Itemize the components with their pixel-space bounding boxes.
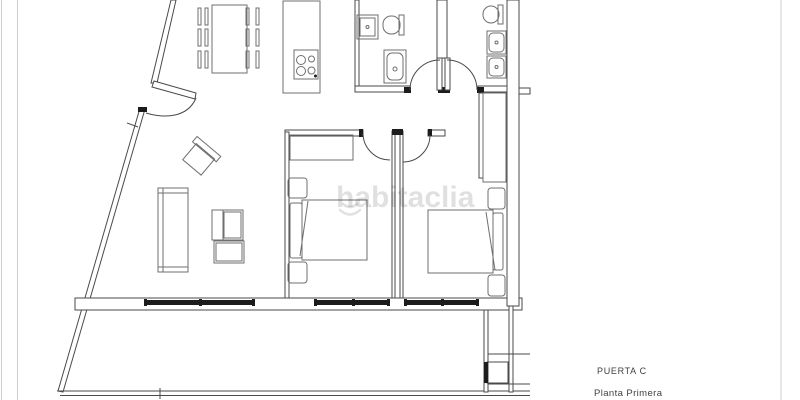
bathroom2-sink-1 xyxy=(487,31,506,54)
tv-unit xyxy=(212,210,244,263)
bedroom-walls xyxy=(285,93,483,298)
cooktop-icon xyxy=(294,50,318,79)
utility-unit xyxy=(487,362,508,383)
entry-door xyxy=(146,81,196,116)
bedroom2-door xyxy=(403,135,430,162)
bookshelf xyxy=(158,188,188,272)
bathroom1-door xyxy=(410,58,442,90)
toilet-icon xyxy=(383,15,404,35)
bathroom1-bathtub xyxy=(384,50,406,83)
armchair xyxy=(180,136,221,177)
floor-label: Planta Primera xyxy=(594,388,662,399)
bedroom1-bed xyxy=(288,178,367,283)
floor-plan-drawing xyxy=(0,0,800,400)
bedroom2-wardrobe xyxy=(483,93,506,182)
door-label: PUERTA C xyxy=(597,366,647,376)
bedroom2-bed xyxy=(428,188,505,296)
terrace-edge xyxy=(57,388,530,399)
bedroom1-door xyxy=(363,133,390,160)
watermark-logo-arcs xyxy=(340,204,360,215)
facade-wall xyxy=(75,298,522,310)
bedroom1-wardrobe xyxy=(290,135,353,160)
bathroom2-toilet-icon xyxy=(483,5,503,24)
dining-table xyxy=(212,5,247,73)
dining-chairs xyxy=(198,8,259,68)
bathroom2-sink-2 xyxy=(487,56,506,78)
floorplan-sheet: habitaclia PUERTA C Planta Primera xyxy=(0,0,800,400)
bathroom1-sink xyxy=(357,15,378,39)
bathroom2-door xyxy=(445,58,477,90)
bathroom-walls xyxy=(355,0,507,93)
